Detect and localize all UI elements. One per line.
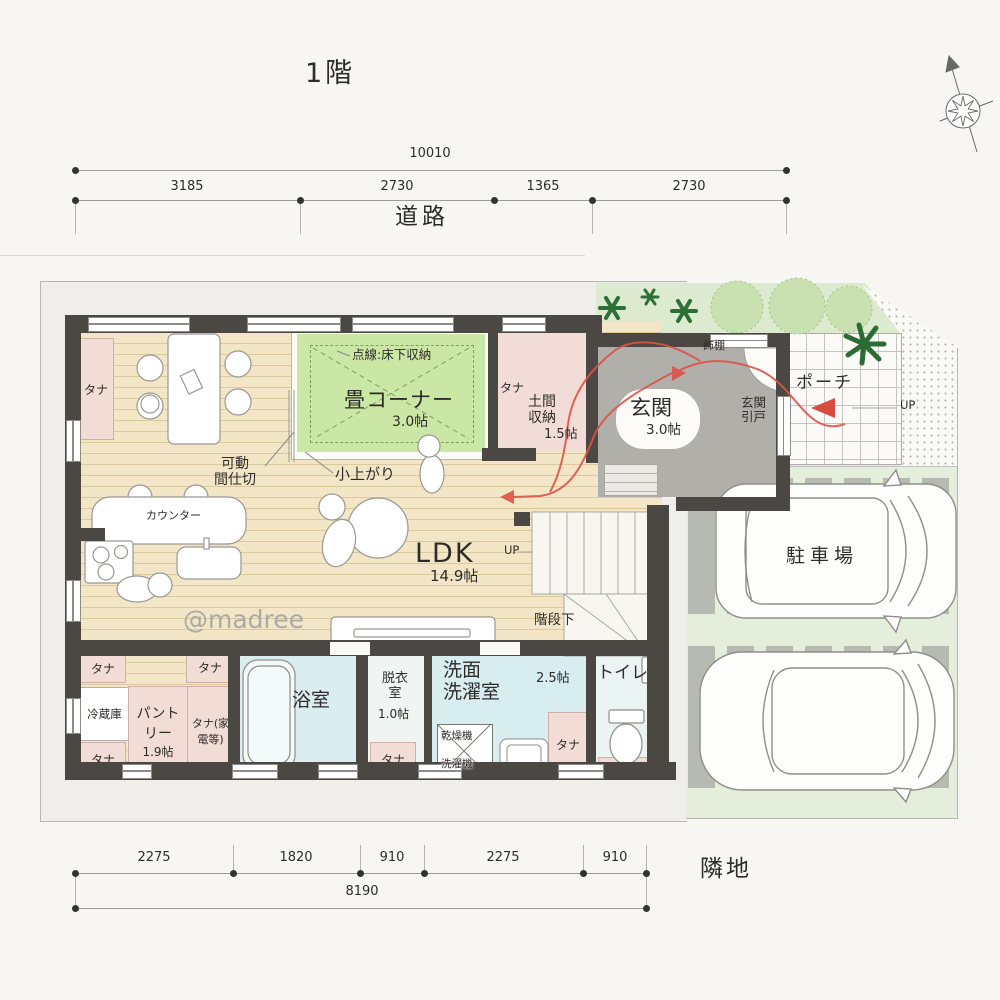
wall-dressing-laundry	[424, 656, 432, 778]
porch-up-label: UP	[900, 399, 915, 412]
tatami-label: 畳コーナー	[344, 388, 454, 412]
window	[122, 764, 152, 779]
partition-label: 可動 間仕切	[214, 456, 256, 488]
top-dim-seg-3: 1365	[503, 180, 583, 195]
laundry-l2: 洗濯室	[443, 682, 500, 704]
shelf-label: タナ	[84, 381, 108, 398]
doma-shelf-label: タナ	[500, 382, 524, 396]
wall-doma-left	[488, 333, 498, 457]
washer-label: 洗濯機	[441, 758, 473, 770]
bottom-dim-seg-4: 2275	[463, 851, 543, 866]
watermark: @madree	[183, 606, 304, 635]
kitchen-shelf-a: タナ	[80, 653, 126, 683]
window	[502, 317, 546, 332]
bath-floor	[238, 652, 358, 774]
dressing-label: 脱衣 室	[382, 672, 408, 702]
fridge-label: 冷蔵庫	[87, 706, 122, 722]
shelf-label: タナ	[198, 659, 222, 676]
tatami-note: 点線:床下収納	[352, 348, 431, 362]
wall-genkan-bottom	[676, 497, 790, 511]
window	[558, 764, 604, 779]
laundry-size: 2.5帖	[536, 672, 570, 687]
shelf-label: タナ	[556, 736, 580, 753]
entrance-arrow-icon	[811, 398, 835, 418]
top-dim-seg-2: 2730	[357, 180, 437, 195]
entrance-sliding-door	[777, 396, 791, 456]
dressing-size: 1.0帖	[378, 708, 409, 722]
porch-tiles	[788, 333, 902, 465]
dim-dot	[72, 905, 79, 912]
dim-dot	[783, 167, 790, 174]
dim-dot	[589, 197, 596, 204]
top-total-dim: 10010	[390, 147, 470, 162]
floor-plan-page: 1階 10010 3185 2730 1365 2730 道路	[0, 0, 1000, 1000]
dim-dot	[491, 197, 498, 204]
dim-dot	[72, 167, 79, 174]
toilet-label: トイレ	[597, 664, 648, 684]
wall-stair-post	[514, 512, 530, 526]
dim-tick	[786, 201, 787, 234]
doma-l2: 収納	[528, 410, 556, 426]
page-title: 1階	[305, 58, 355, 89]
top-dim-seg-4: 2730	[649, 180, 729, 195]
counter-label: カウンター	[146, 510, 201, 523]
dim-tick	[75, 201, 76, 234]
door-opening	[480, 642, 520, 655]
dim-tick	[75, 873, 76, 908]
bottom-total-dim: 8190	[322, 885, 402, 900]
genkan-label: 玄関	[630, 396, 672, 420]
doma-label: 土間 収納	[528, 394, 556, 426]
doma-l1: 土間	[528, 394, 556, 410]
dim-dot	[357, 870, 364, 877]
parking-paving	[688, 646, 956, 788]
door-opening	[330, 642, 370, 655]
dim-dot	[580, 870, 587, 877]
partition-l2: 間仕切	[214, 472, 256, 488]
window	[66, 420, 81, 462]
shelf-label: タナ	[91, 660, 115, 677]
bath-label: 浴室	[292, 690, 330, 712]
dim-tick	[300, 201, 301, 234]
dim-dot	[421, 870, 428, 877]
dining-shelf: タナ	[78, 338, 114, 440]
top-total-dim-line	[75, 170, 786, 171]
dressing-l1: 脱衣	[382, 672, 408, 687]
top-dim-seg-1: 3185	[147, 180, 227, 195]
window	[352, 317, 454, 332]
dim-dot	[72, 197, 79, 204]
window	[66, 698, 81, 734]
bottom-dim-seg-5: 910	[575, 851, 655, 866]
pantry-size: 1.9帖	[142, 743, 173, 760]
compass-icon	[940, 56, 993, 152]
step-label: 小上がり	[335, 466, 395, 483]
bottom-dim-seg-2: 1820	[256, 851, 336, 866]
road-boundary-line	[0, 255, 585, 256]
stairs-up-label: UP	[504, 544, 519, 557]
display-shelf-label: 飾棚	[703, 340, 725, 353]
bottom-dim-seg-1: 2275	[114, 851, 194, 866]
door-l1: 玄関	[741, 396, 766, 410]
dim-dot	[643, 870, 650, 877]
window	[232, 764, 278, 779]
window	[247, 317, 341, 332]
laundry-l1: 洗面	[443, 660, 500, 682]
window	[66, 580, 81, 622]
appliance-shelf-label: タナ(家電等)	[191, 715, 231, 747]
door-l2: 引戸	[741, 410, 766, 424]
window	[318, 764, 358, 779]
dryer-label: 乾燥機	[441, 730, 473, 742]
fridge: 冷蔵庫	[80, 687, 129, 741]
wall-kitchen-stub	[65, 528, 105, 541]
pantry-label: パントリー	[132, 703, 184, 743]
wall-doma-right	[586, 333, 598, 463]
dim-dot	[643, 905, 650, 912]
bottom-dim-seg-3: 910	[352, 851, 432, 866]
wall-laundry-toilet	[586, 656, 596, 778]
dim-dot	[230, 870, 237, 877]
tatami-size: 3.0帖	[392, 414, 428, 430]
laundry-label: 洗面 洗濯室	[443, 660, 500, 704]
porch-label: ポーチ	[796, 374, 853, 394]
genkan-size: 3.0帖	[646, 423, 681, 439]
partition-l1: 可動	[214, 456, 256, 472]
ldk-label: LDK	[415, 538, 475, 569]
ldk-size: 14.9帖	[430, 568, 478, 585]
dim-tick	[233, 845, 234, 873]
wall-bath-dressing	[356, 656, 368, 778]
dim-dot	[783, 197, 790, 204]
bottom-total-dim-line	[75, 908, 646, 909]
parking-label: 駐車場	[786, 546, 858, 568]
dressing-l2: 室	[382, 687, 408, 702]
entrance-door-label: 玄関 引戸	[741, 396, 766, 425]
top-seg-dim-line	[75, 200, 786, 201]
site-right-boundary	[957, 348, 958, 818]
dim-tick	[592, 201, 593, 234]
neighbor-label: 隣地	[700, 856, 752, 882]
doma-size: 1.5帖	[544, 428, 578, 443]
window	[88, 317, 190, 332]
wall-doma-bottom	[482, 448, 536, 461]
dim-dot	[297, 197, 304, 204]
under-stairs-label: 階段下	[534, 613, 575, 629]
approach-steps	[604, 464, 658, 496]
road-label: 道路	[382, 204, 462, 230]
dim-dot	[72, 870, 79, 877]
wall-pantry-bath	[228, 656, 240, 778]
